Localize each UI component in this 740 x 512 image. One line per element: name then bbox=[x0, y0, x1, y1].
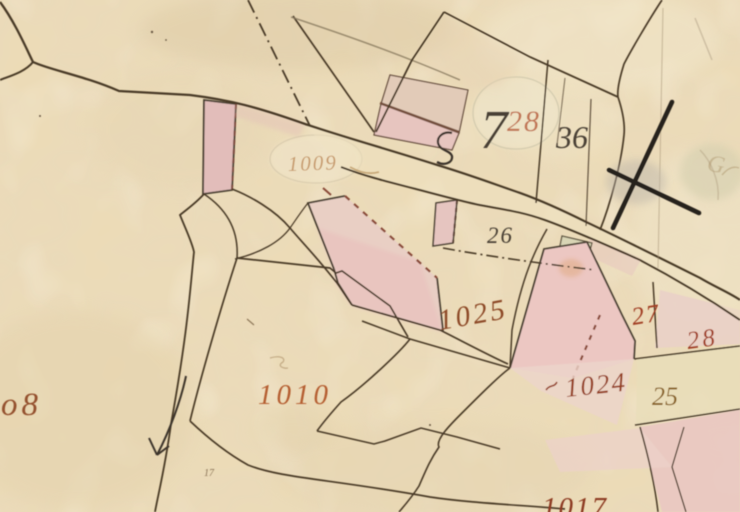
svg-text:36: 36 bbox=[555, 119, 588, 155]
svg-text:26: 26 bbox=[487, 223, 514, 248]
svg-text:25: 25 bbox=[652, 382, 678, 411]
svg-text:1010: 1010 bbox=[258, 379, 332, 411]
svg-text:1017: 1017 bbox=[542, 492, 608, 512]
svg-text:27: 27 bbox=[630, 300, 663, 331]
svg-text:28: 28 bbox=[507, 105, 541, 138]
svg-text:7: 7 bbox=[480, 99, 510, 160]
svg-text:1009: 1009 bbox=[287, 150, 338, 176]
svg-text:17: 17 bbox=[204, 468, 215, 479]
svg-text:o8: o8 bbox=[1, 387, 42, 423]
svg-text:28: 28 bbox=[685, 324, 719, 355]
